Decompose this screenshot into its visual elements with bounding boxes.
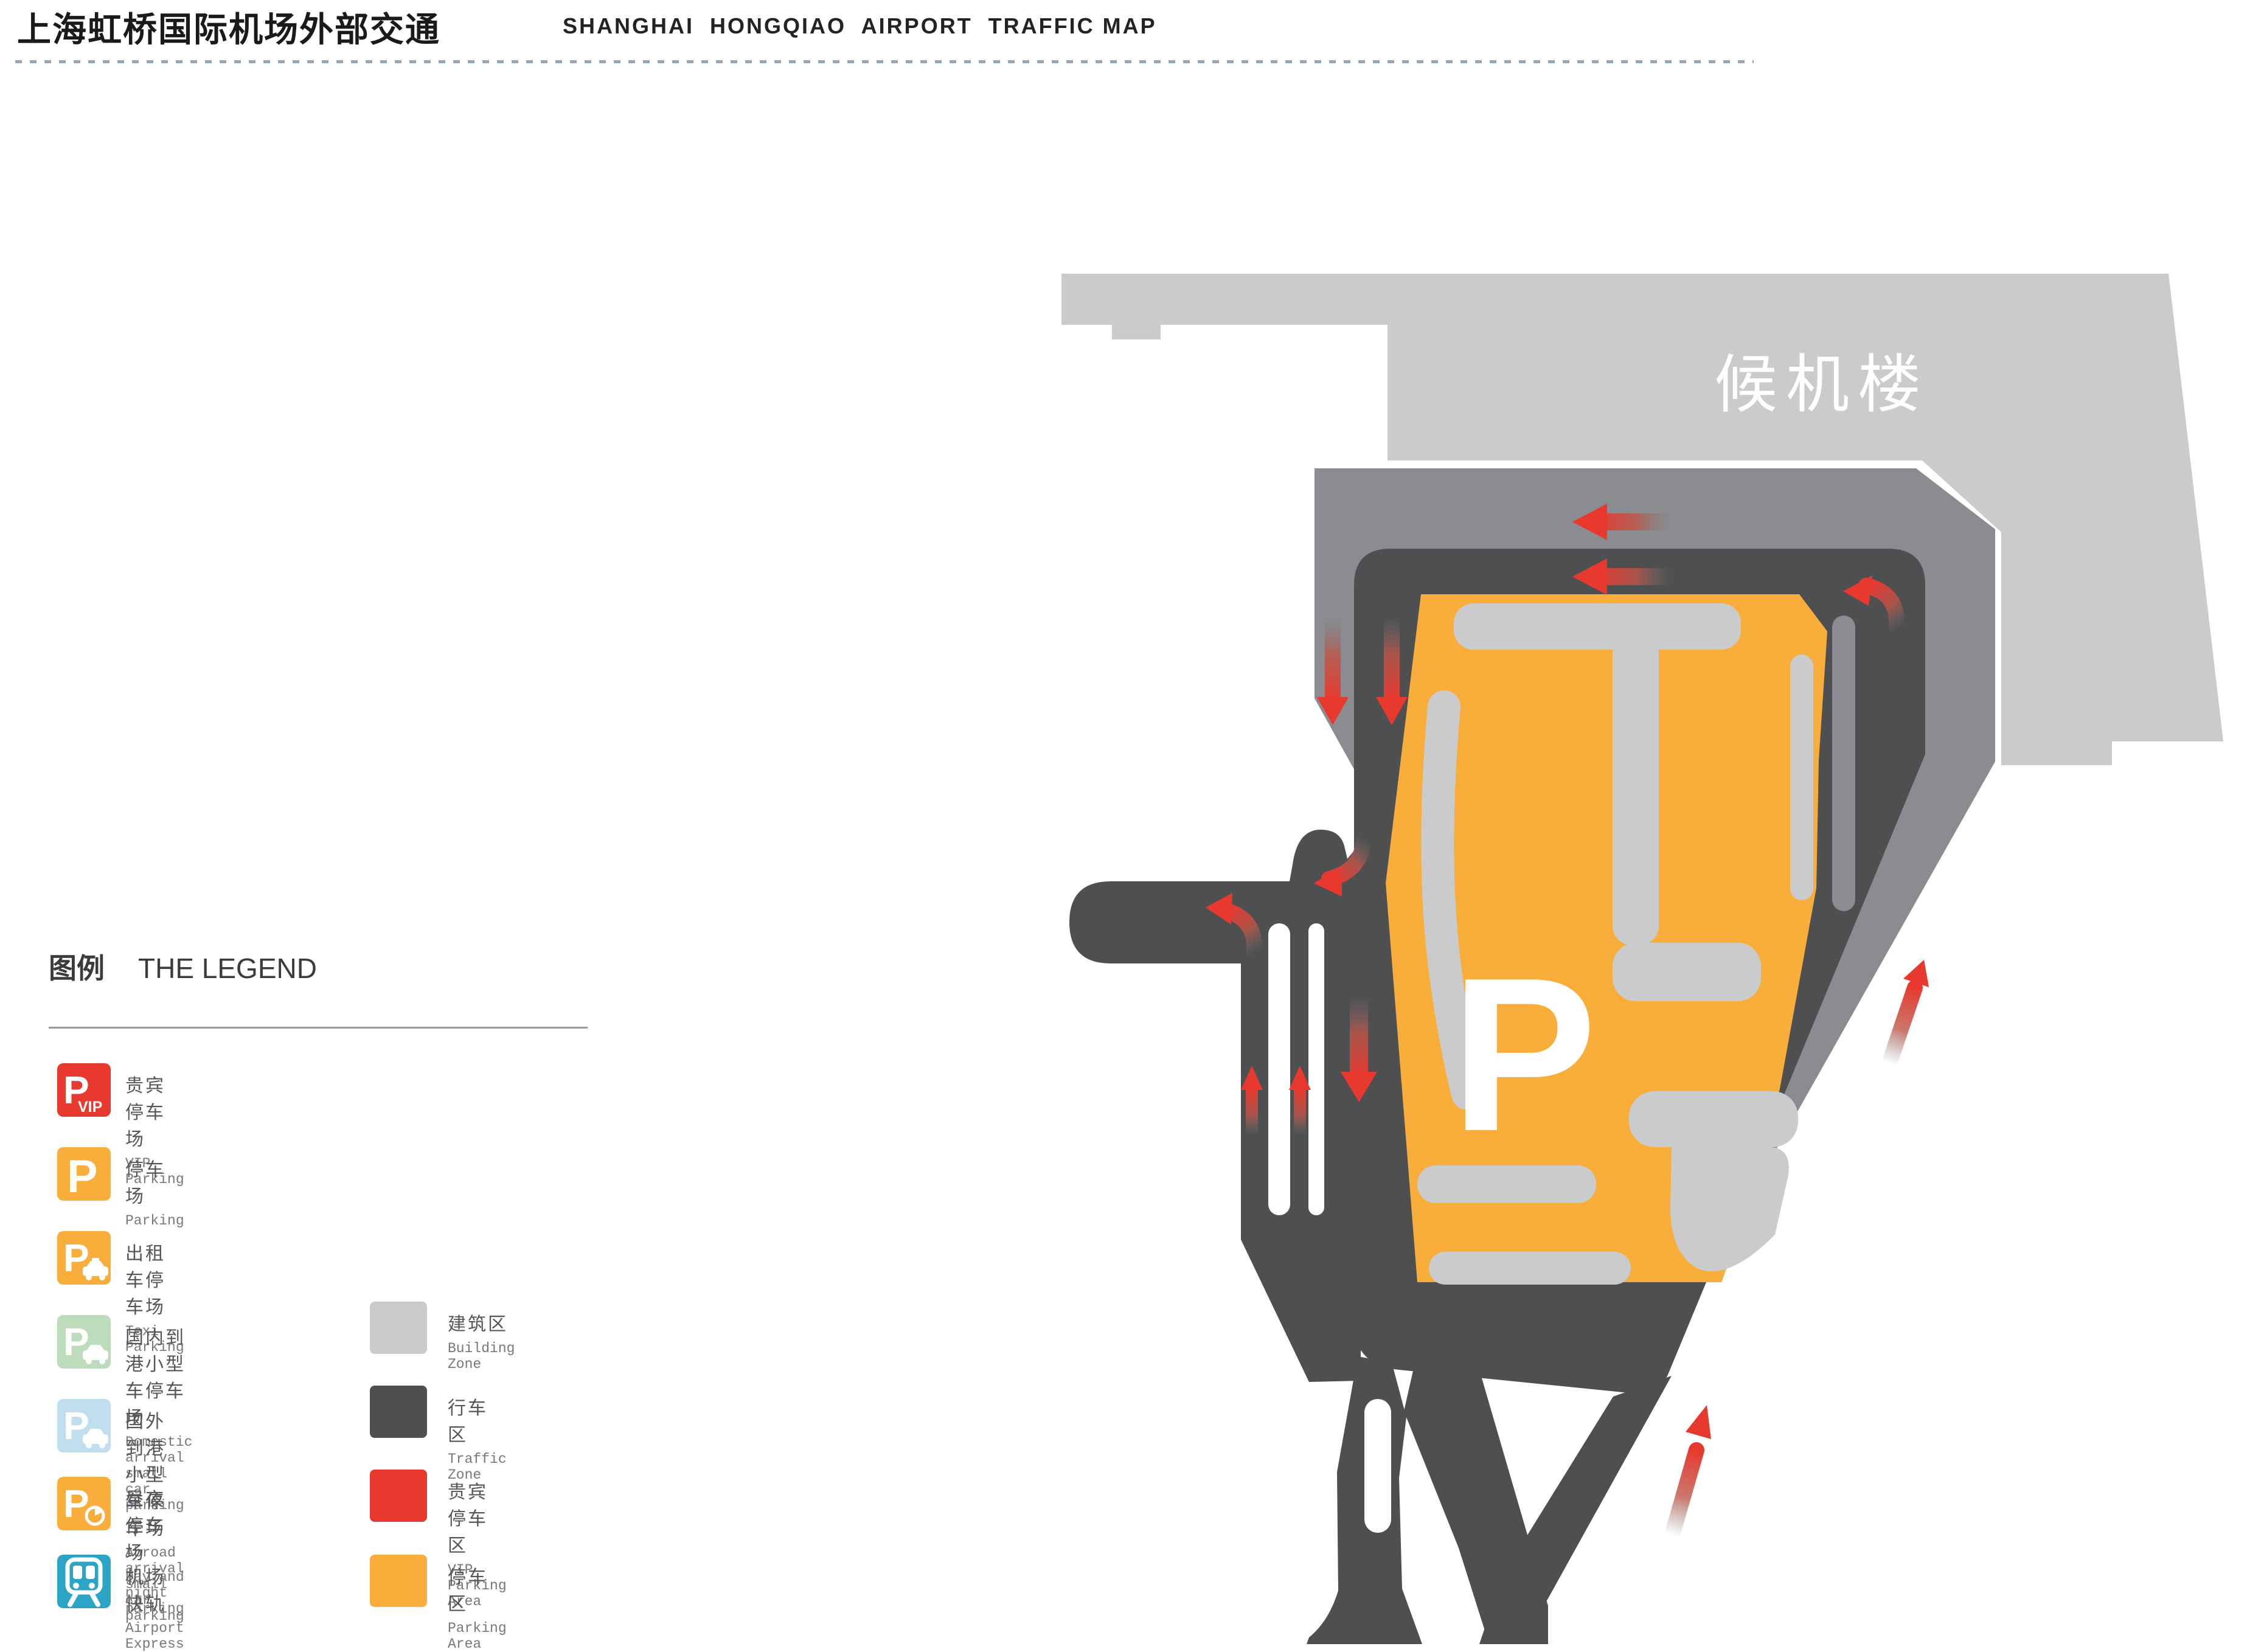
lane-top-bar	[1454, 603, 1741, 650]
road-leg-hole	[1364, 1399, 1391, 1533]
lane-t-stem	[1613, 634, 1659, 945]
lane-mid-bar	[1629, 1091, 1798, 1147]
lane-bottom-bar-2	[1429, 1252, 1631, 1285]
terminal-label: 候机楼	[1714, 347, 1929, 422]
lane-right-bar	[1790, 654, 1813, 900]
lane-funnel-blob	[1670, 1147, 1789, 1271]
airport-traffic-map: 候机楼 P	[0, 0, 2247, 1644]
lane-slot-white-2	[1308, 923, 1324, 1215]
lane-slot-white-1	[1268, 923, 1290, 1215]
lane-l-foot	[1613, 943, 1761, 1001]
parking-label: P	[1451, 932, 1597, 1177]
lane-right-gray-bar	[1832, 616, 1855, 911]
arrow-diagonal-right	[1891, 960, 1929, 1060]
arrow-bottom-leg	[1673, 1405, 1711, 1533]
